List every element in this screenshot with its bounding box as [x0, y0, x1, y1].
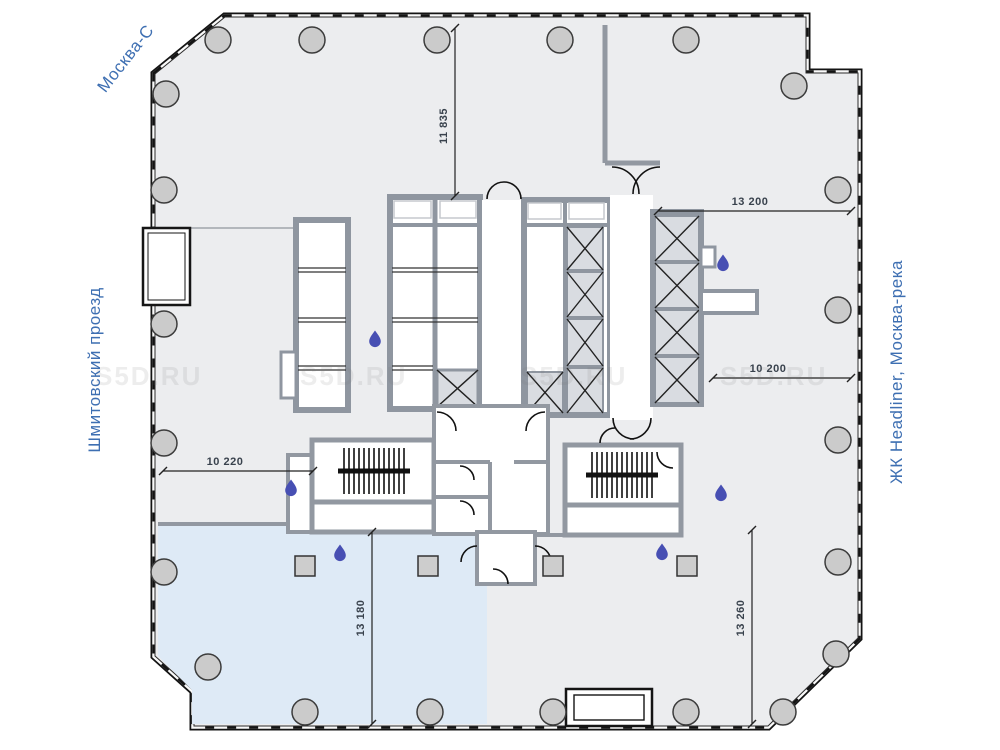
entrance-vestibule: [566, 689, 652, 726]
floor-plan-canvas: 11 835 13 200 10 200 10 220 13 180 13 26…: [0, 0, 1000, 750]
street-label-left: Шмитовский проезд: [85, 287, 104, 452]
dimension-label: 13 260: [735, 600, 747, 637]
dimension-label: 13 200: [732, 196, 769, 208]
watermark-text: S5D.RU: [95, 361, 202, 391]
staircase-left: [288, 440, 434, 532]
dimension-label: 10 220: [207, 456, 244, 468]
street-label-top-left: Москва-С: [94, 21, 158, 96]
staircase-right: [565, 445, 681, 535]
core-corridor-left: [482, 200, 524, 415]
dimension-label: 13 180: [355, 600, 367, 637]
watermark-text: S5D.RU: [720, 361, 827, 391]
street-label-right: ЖК Headliner, Москва-река: [887, 260, 906, 484]
watermark-text: S5D.RU: [520, 361, 627, 391]
watermark-text: S5D.RU: [300, 361, 407, 391]
dimension-label: 11 835: [438, 108, 450, 144]
shaft-x-cell: [437, 370, 478, 407]
shaft-x-cells: [655, 216, 699, 403]
facade-bay-box: [143, 228, 190, 305]
floorplan-screenshot: 11 835 13 200 10 200 10 220 13 180 13 26…: [0, 0, 1000, 750]
